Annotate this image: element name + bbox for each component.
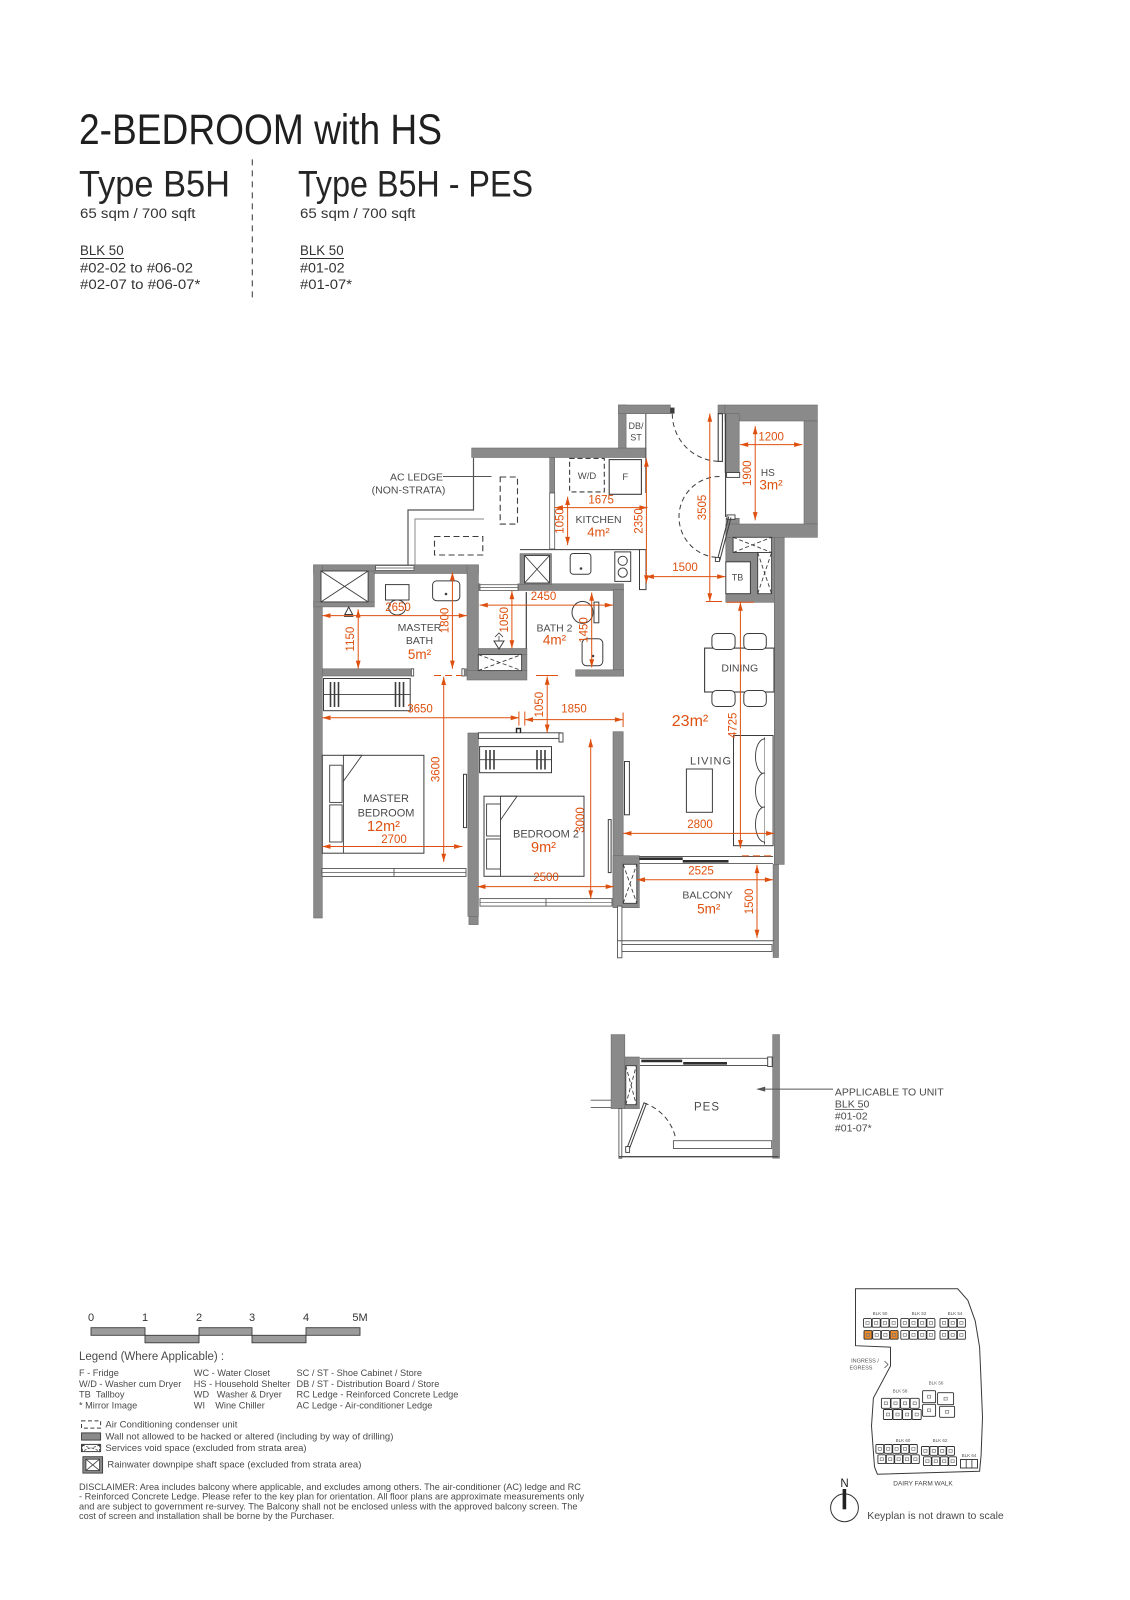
svg-text:Rainwater downpipe shaft space: Rainwater downpipe shaft space (excluded… — [107, 1460, 361, 1471]
svg-text:12m²: 12m² — [367, 819, 400, 835]
svg-text:HS - Household Shelter: HS - Household Shelter — [194, 1379, 291, 1389]
svg-text:#02-07 to #06-07*: #02-07 to #06-07* — [80, 277, 201, 292]
svg-text:1500: 1500 — [672, 562, 698, 574]
svg-text:65 sqm / 700 sqft: 65 sqm / 700 sqft — [300, 206, 416, 221]
svg-text:2450: 2450 — [531, 591, 557, 603]
svg-text:1050: 1050 — [555, 508, 567, 534]
svg-text:PES: PES — [694, 1102, 720, 1114]
svg-text:3000: 3000 — [575, 807, 587, 833]
svg-text:SC / ST - Shoe Cabinet / Store: SC / ST - Shoe Cabinet / Store — [297, 1368, 422, 1378]
svg-text:23m²: 23m² — [672, 713, 709, 730]
svg-text:BEDROOM: BEDROOM — [358, 808, 415, 820]
svg-text:3: 3 — [249, 1312, 255, 1324]
svg-text:5M: 5M — [352, 1312, 367, 1324]
svg-text:1450: 1450 — [579, 617, 591, 643]
svg-text:(NON-STRATA): (NON-STRATA) — [372, 485, 446, 497]
svg-text:INGRESS /: INGRESS / — [851, 1359, 879, 1365]
svg-text:3650: 3650 — [407, 704, 433, 716]
svg-text:3505: 3505 — [697, 495, 709, 521]
svg-text:1500: 1500 — [744, 889, 756, 915]
svg-text:1: 1 — [142, 1312, 148, 1324]
svg-text:BLK 52: BLK 52 — [912, 1311, 927, 1316]
svg-text:4m²: 4m² — [587, 525, 610, 540]
svg-text:AC Ledge - Air-conditioner Led: AC Ledge - Air-conditioner Ledge — [297, 1400, 433, 1410]
svg-text:4725: 4725 — [727, 713, 739, 739]
svg-text:WD Washer & Dryer: WD Washer & Dryer — [194, 1390, 282, 1400]
svg-text:2800: 2800 — [687, 819, 713, 831]
svg-text:BATH: BATH — [406, 635, 433, 647]
svg-text:WI Wine Chiller: WI Wine Chiller — [194, 1400, 265, 1410]
svg-text:DAIRY FARM WALK: DAIRY FARM WALK — [893, 1481, 953, 1488]
svg-text:Type B5H - PES: Type B5H - PES — [298, 163, 533, 205]
svg-text:ST: ST — [630, 433, 642, 443]
svg-text:2525: 2525 — [688, 866, 714, 878]
svg-text:- Reinforced Concrete Ledge. P: - Reinforced Concrete Ledge. Please refe… — [79, 1492, 584, 1502]
svg-text:BEDROOM 2: BEDROOM 2 — [513, 829, 579, 841]
svg-text:TB Tallboy: TB Tallboy — [79, 1390, 125, 1400]
svg-text:2700: 2700 — [381, 834, 407, 846]
svg-text:MASTER: MASTER — [398, 622, 442, 634]
svg-text:1900: 1900 — [742, 460, 754, 486]
svg-text:F: F — [622, 472, 628, 483]
svg-text:5m²: 5m² — [408, 647, 432, 662]
svg-text:BLK 56: BLK 56 — [929, 1381, 944, 1386]
svg-text:APPLICABLE TO UNIT: APPLICABLE TO UNIT — [835, 1087, 944, 1099]
svg-text:DISCLAIMER: Area includes balc: DISCLAIMER: Area includes balcony where … — [79, 1482, 581, 1492]
svg-text:#02-02 to #06-02: #02-02 to #06-02 — [80, 261, 193, 276]
svg-text:F - Fridge: F - Fridge — [79, 1368, 119, 1378]
svg-text:1150: 1150 — [345, 627, 357, 652]
svg-text:2350: 2350 — [633, 508, 645, 534]
svg-text:#01-07*: #01-07* — [300, 277, 353, 292]
svg-text:3600: 3600 — [431, 757, 443, 783]
svg-text:W/D - Washer cum Dryer: W/D - Washer cum Dryer — [79, 1379, 181, 1389]
svg-text:Services void space (excluded: Services void space (excluded from strat… — [105, 1443, 306, 1454]
svg-text:LIVING: LIVING — [690, 756, 732, 768]
svg-text:#01-02: #01-02 — [300, 261, 345, 276]
svg-text:Legend (Where Applicable) :: Legend (Where Applicable) : — [79, 1351, 224, 1363]
svg-text:BLK 50: BLK 50 — [873, 1311, 888, 1316]
svg-text:4: 4 — [303, 1312, 309, 1324]
svg-text:BLK 50: BLK 50 — [300, 243, 344, 258]
svg-text:1800: 1800 — [439, 608, 451, 634]
svg-text:RC Ledge - Reinforced Concrete: RC Ledge - Reinforced Concrete Ledge — [297, 1390, 459, 1400]
svg-text:WC - Water Closet: WC - Water Closet — [194, 1368, 271, 1378]
svg-text:W/D: W/D — [578, 471, 597, 482]
svg-text:4m²: 4m² — [543, 633, 567, 648]
svg-text:0: 0 — [88, 1312, 94, 1324]
svg-text:Wall not allowed to be hacked: Wall not allowed to be hacked or altered… — [105, 1431, 393, 1442]
svg-text:BLK 64: BLK 64 — [962, 1453, 977, 1458]
svg-text:and are subject to government: and are subject to government re-survey.… — [79, 1501, 577, 1511]
svg-text:DINING: DINING — [721, 663, 758, 675]
svg-text:#01-02: #01-02 — [835, 1111, 868, 1123]
svg-text:BLK 62: BLK 62 — [933, 1438, 948, 1443]
svg-text:1675: 1675 — [588, 495, 614, 507]
svg-text:65 sqm / 700 sqft: 65 sqm / 700 sqft — [80, 206, 196, 221]
svg-text:DB/: DB/ — [628, 421, 644, 431]
svg-text:1850: 1850 — [561, 704, 587, 716]
svg-text:BLK 54: BLK 54 — [948, 1311, 963, 1316]
svg-text:* Mirror Image: * Mirror Image — [79, 1400, 137, 1410]
svg-text:1050: 1050 — [534, 692, 546, 718]
svg-text:N: N — [840, 1478, 848, 1490]
svg-text:EGRESS: EGRESS — [850, 1366, 873, 1372]
svg-text:#01-07*: #01-07* — [835, 1123, 872, 1135]
svg-text:2500: 2500 — [533, 872, 559, 884]
svg-text:BLK 50: BLK 50 — [80, 243, 124, 258]
svg-text:2-BEDROOM with HS: 2-BEDROOM with HS — [79, 106, 442, 154]
svg-text:BLK 50: BLK 50 — [835, 1099, 870, 1111]
svg-text:1050: 1050 — [499, 607, 511, 633]
svg-text:MASTER: MASTER — [363, 793, 409, 805]
svg-text:2650: 2650 — [385, 602, 411, 614]
svg-text:2: 2 — [196, 1312, 202, 1324]
svg-text:BLK 58: BLK 58 — [893, 1389, 908, 1394]
svg-text:1200: 1200 — [758, 432, 784, 444]
svg-text:Keyplan is not drawn to scale: Keyplan is not drawn to scale — [867, 1510, 1004, 1522]
svg-text:DB / ST - Distribution Board /: DB / ST - Distribution Board / Store — [297, 1379, 440, 1389]
svg-text:Type B5H: Type B5H — [79, 163, 230, 205]
svg-text:BLK 60: BLK 60 — [896, 1438, 911, 1443]
svg-text:AC LEDGE: AC LEDGE — [390, 472, 443, 484]
svg-text:3m²: 3m² — [759, 478, 783, 493]
svg-text:cost of screen and installatio: cost of screen and installation shall be… — [79, 1511, 334, 1521]
svg-text:BALCONY: BALCONY — [682, 890, 732, 902]
svg-text:TB: TB — [732, 573, 744, 583]
svg-text:9m²: 9m² — [531, 840, 556, 856]
svg-text:5m²: 5m² — [697, 902, 721, 917]
svg-text:Air Conditioning condenser uni: Air Conditioning condenser unit — [105, 1419, 237, 1430]
